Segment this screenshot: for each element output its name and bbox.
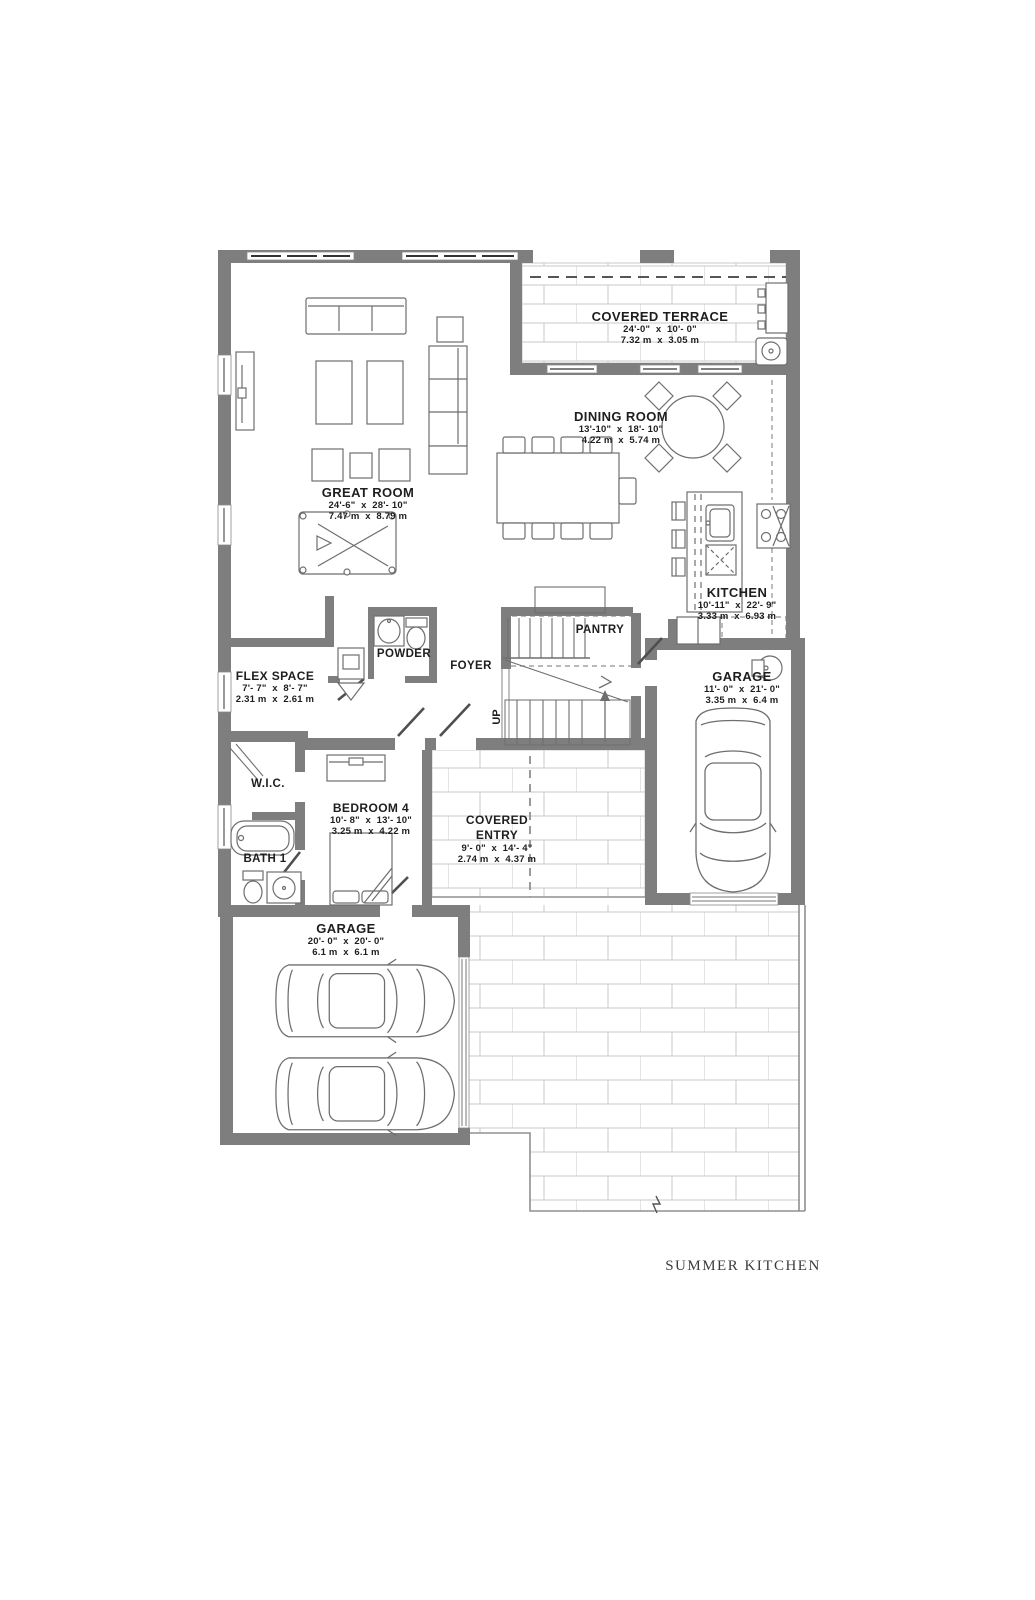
room-dims-ft: 10'- 8" x 13'- 10" xyxy=(330,815,412,826)
room-name: FLEX SPACE xyxy=(236,669,314,683)
room-name: GARAGE xyxy=(704,670,780,684)
room-name: KITCHEN xyxy=(698,586,777,600)
room-dims-ft: 7'- 7" x 8'- 7" xyxy=(236,683,314,694)
room-label-covered-entry: COVERED ENTRY 9'- 0" x 14'- 4" 2.74 m x … xyxy=(451,813,543,865)
room-dims-m: 3.25 m x 4.22 m xyxy=(330,826,412,837)
room-name: GREAT ROOM xyxy=(322,486,415,500)
car-garage-rear-2 xyxy=(276,1052,454,1135)
floorplan-drawing xyxy=(0,0,1035,1600)
room-name: DINING ROOM xyxy=(574,410,668,424)
room-dims-m: 2.74 m x 4.37 m xyxy=(451,854,543,865)
room-dims-m: 3.33 m x 6.93 m xyxy=(698,611,777,622)
room-label-pantry: PANTRY xyxy=(576,624,624,636)
room-dims-m: 3.35 m x 6.4 m xyxy=(704,695,780,706)
car-garage-right xyxy=(690,708,776,892)
room-label-powder: POWDER xyxy=(377,648,431,660)
floorplan-page: COVERED TERRACE 24'-0" x 10'- 0" 7.32 m … xyxy=(0,0,1035,1600)
room-label-great-room: GREAT ROOM 24'-6" x 28'- 10" 7.47 m x 8.… xyxy=(322,486,415,522)
wic-fixtures xyxy=(230,744,263,780)
room-label-bedroom-4: BEDROOM 4 10'- 8" x 13'- 10" 3.25 m x 4.… xyxy=(330,801,412,837)
room-name: GARAGE xyxy=(308,922,384,936)
room-label-dining-room: DINING ROOM 13'-10" x 18'- 10" 4.22 m x … xyxy=(574,410,668,446)
room-label-foyer: FOYER xyxy=(450,660,492,672)
room-dims-ft: 24'-6" x 28'- 10" xyxy=(322,500,415,511)
room-name: POWDER xyxy=(377,648,431,660)
stairs-up-label: UP xyxy=(491,709,503,724)
room-dims-ft: 13'-10" x 18'- 10" xyxy=(574,424,668,435)
car-garage-rear-1 xyxy=(276,959,454,1042)
room-dims-ft: 11'- 0" x 21'- 0" xyxy=(704,684,780,695)
room-label-wic: W.I.C. xyxy=(251,778,285,790)
room-name: COVERED TERRACE xyxy=(592,310,729,324)
room-dims-ft: 24'-0" x 10'- 0" xyxy=(592,324,729,335)
room-dims-m: 7.32 m x 3.05 m xyxy=(592,335,729,346)
room-name: W.I.C. xyxy=(251,778,285,790)
terrace-fixtures xyxy=(756,283,788,365)
room-dims-ft: 20'- 0" x 20'- 0" xyxy=(308,936,384,947)
room-name: FOYER xyxy=(450,660,492,672)
room-dims-m: 2.31 m x 2.61 m xyxy=(236,694,314,705)
room-label-garage-right: GARAGE 11'- 0" x 21'- 0" 3.35 m x 6.4 m xyxy=(704,670,780,706)
room-dims-ft: 10'-11" x 22'- 9" xyxy=(698,600,777,611)
room-name: BATH 1 xyxy=(243,853,286,865)
room-label-bath-1: BATH 1 xyxy=(243,853,286,865)
room-dims-m: 6.1 m x 6.1 m xyxy=(308,947,384,958)
room-label-covered-terrace: COVERED TERRACE 24'-0" x 10'- 0" 7.32 m … xyxy=(592,310,729,346)
room-name: BEDROOM 4 xyxy=(330,801,412,815)
room-label-garage-rear: GARAGE 20'- 0" x 20'- 0" 6.1 m x 6.1 m xyxy=(308,922,384,958)
room-label-kitchen: KITCHEN 10'-11" x 22'- 9" 3.33 m x 6.93 … xyxy=(698,586,777,622)
great-room-furniture xyxy=(236,298,467,575)
room-name: COVERED ENTRY xyxy=(451,813,543,843)
room-name: PANTRY xyxy=(576,624,624,636)
room-dims-ft: 9'- 0" x 14'- 4" xyxy=(451,843,543,854)
room-dims-m: 7.47 m x 8.79 m xyxy=(322,511,415,522)
summer-kitchen-note: SUMMER KITCHEN xyxy=(665,1258,821,1275)
room-label-flex-space: FLEX SPACE 7'- 7" x 8'- 7" 2.31 m x 2.61… xyxy=(236,669,314,705)
room-dims-m: 4.22 m x 5.74 m xyxy=(574,435,668,446)
